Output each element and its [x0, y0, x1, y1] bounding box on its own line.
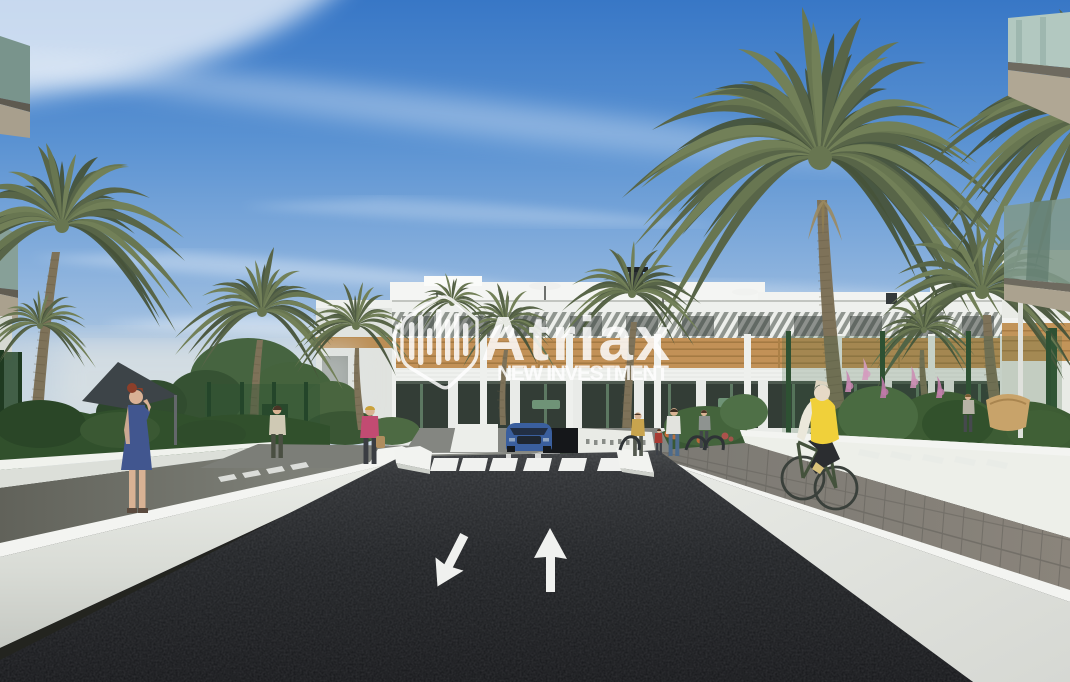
svg-text:NEW INVESTMENT: NEW INVESTMENT: [497, 362, 669, 385]
